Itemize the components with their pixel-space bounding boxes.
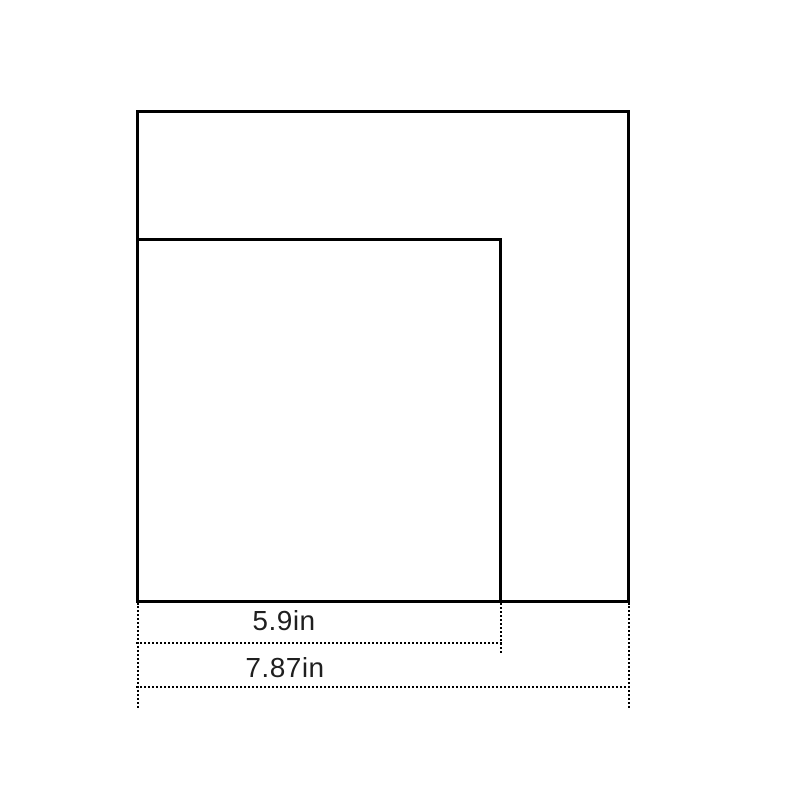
dimension-label-outer-width: 7.87in (200, 652, 370, 684)
dimension-label-inner-width: 5.9in (199, 605, 369, 637)
extension-line-inner-right (500, 603, 502, 653)
inner-square (136, 238, 502, 603)
extension-line-outer-right (628, 603, 630, 708)
dimension-line-outer-width (136, 686, 630, 688)
geometry-diagram: 5.9in 7.87in (0, 0, 800, 800)
dimension-line-inner-width (136, 642, 502, 644)
extension-line-left (137, 603, 139, 708)
